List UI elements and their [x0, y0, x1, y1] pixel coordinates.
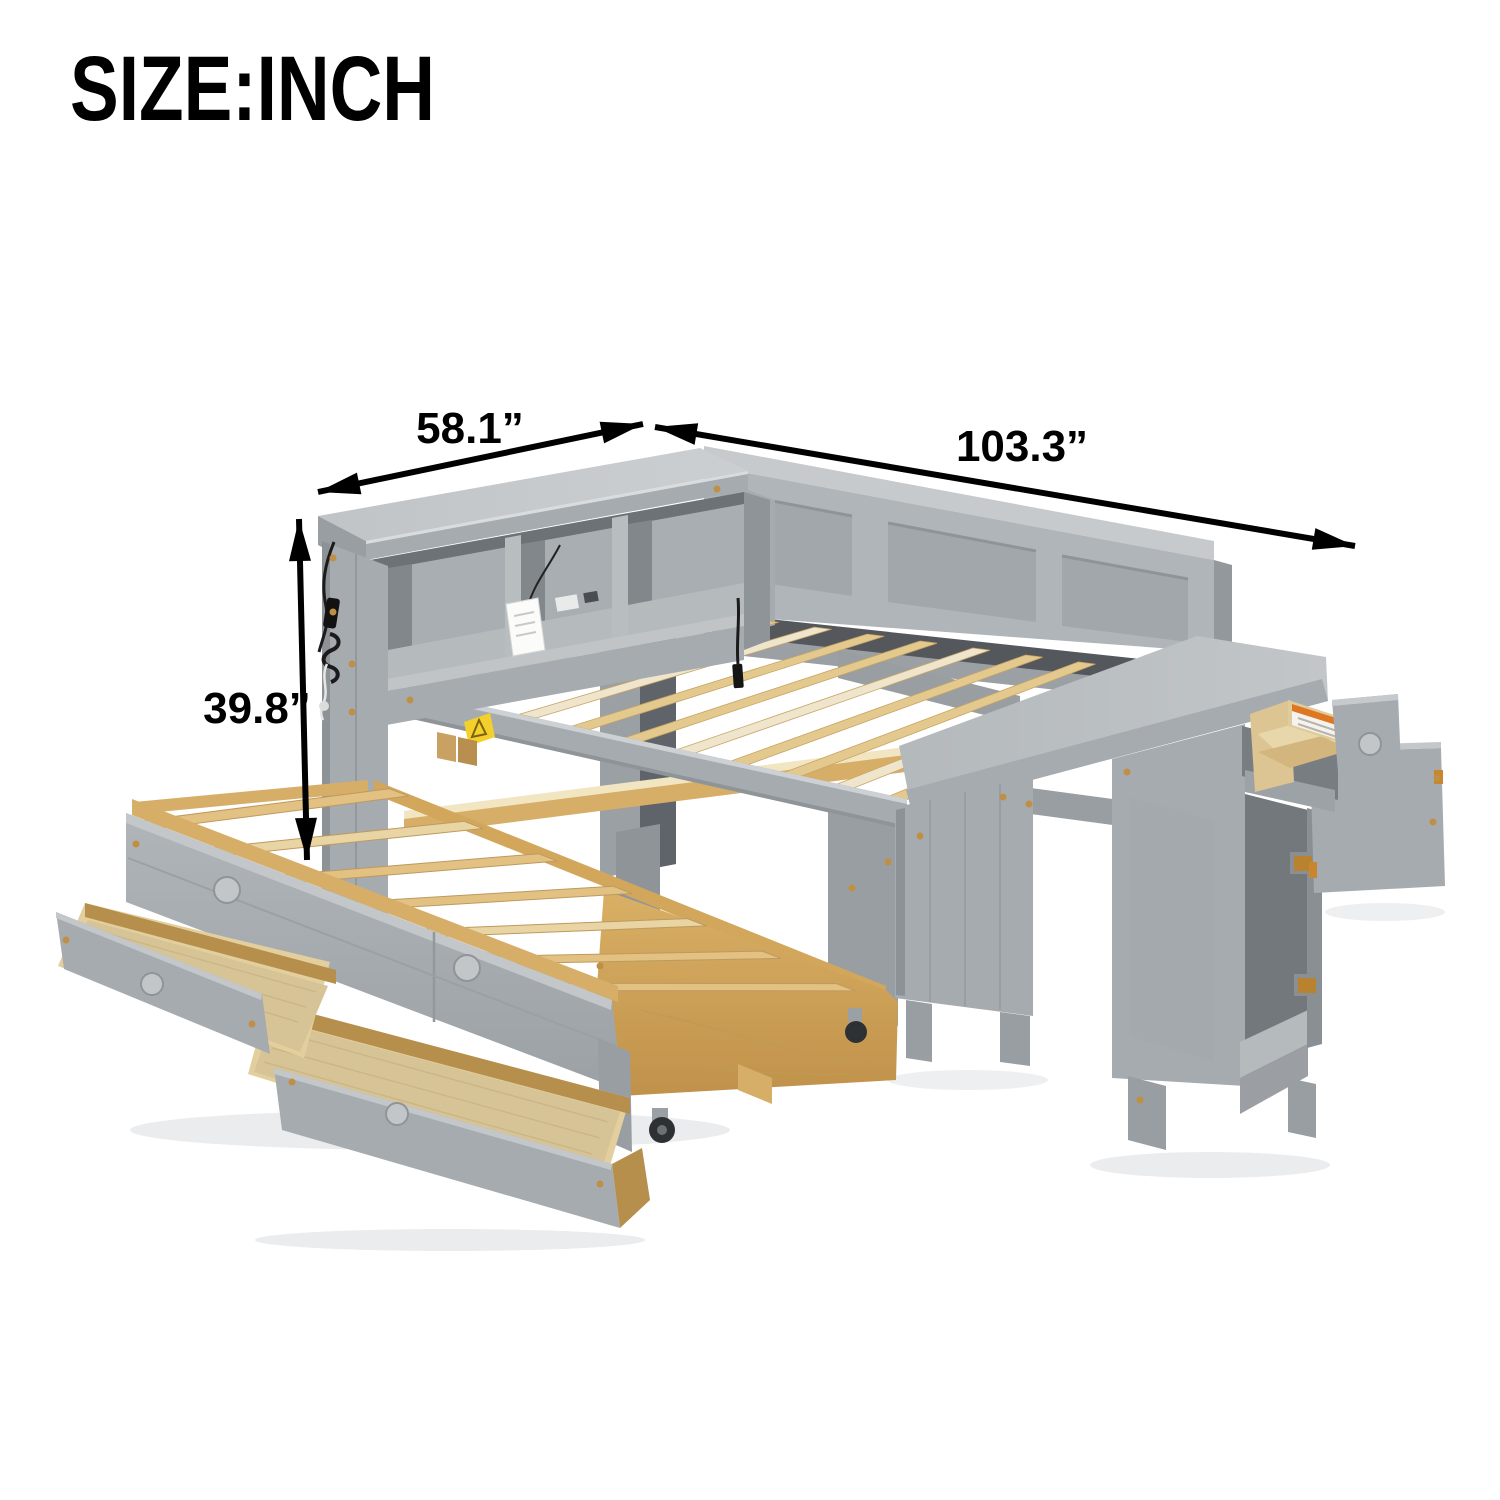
svg-text:103.3”: 103.3”: [956, 422, 1088, 471]
svg-text:SIZE:INCH: SIZE:INCH: [70, 38, 435, 140]
svg-text:58.1”: 58.1”: [416, 404, 524, 453]
svg-text:39.8”: 39.8”: [203, 684, 311, 733]
